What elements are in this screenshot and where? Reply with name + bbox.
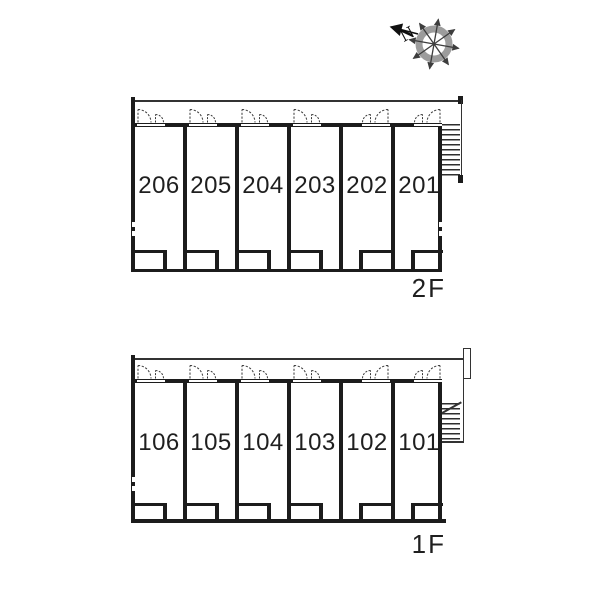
unit-divider-wall (391, 379, 395, 522)
unit-number: 104 (242, 431, 284, 455)
door-opening (189, 124, 217, 126)
door-swing-icon (414, 106, 441, 123)
balcony-step-line (291, 503, 321, 506)
floorplan-canvas: N 206205204203202201 2F 1061051041031021… (0, 0, 600, 600)
unit-number: 201 (398, 174, 440, 198)
balcony-step-line (413, 250, 443, 253)
unit-number: 101 (398, 431, 440, 455)
balcony-step-wall (359, 250, 363, 272)
unit-divider-wall (339, 379, 343, 522)
door-opening (137, 124, 165, 126)
balcony-step-wall (267, 503, 271, 522)
unit-divider-wall (287, 379, 291, 522)
door-swing-icon (189, 106, 216, 123)
door-opening (293, 124, 321, 126)
door-swing-icon (362, 362, 389, 379)
unit-number: 204 (242, 174, 284, 198)
balcony-step-line (187, 250, 217, 253)
door-opening (362, 380, 390, 382)
balcony-step-wall (319, 503, 323, 522)
unit-divider-wall (391, 123, 395, 272)
door-opening (414, 380, 442, 382)
door-swing-icon (137, 362, 164, 379)
balcony-step-line (187, 503, 217, 506)
door-swing-icon (293, 362, 320, 379)
balcony-step-wall (163, 503, 167, 522)
unit-number: 203 (294, 174, 336, 198)
balcony-step-line (239, 503, 269, 506)
unit-number: 205 (190, 174, 232, 198)
door-swing-icon (362, 106, 389, 123)
floor-label: 1F (368, 531, 446, 557)
balcony-step-wall (411, 503, 415, 522)
balcony-step-line (361, 250, 391, 253)
balcony-step-wall (267, 250, 271, 272)
door-swing-icon (414, 362, 441, 379)
door-opening (414, 124, 442, 126)
unit-number: 202 (346, 174, 388, 198)
floorplan-2f: 206205204203202201 2F (128, 96, 480, 314)
door-swing-icon (189, 362, 216, 379)
door-swing-icon (293, 106, 320, 123)
balcony-step-wall (163, 250, 167, 272)
balcony-step-line (135, 503, 165, 506)
unit-divider-wall (235, 379, 239, 522)
unit-divider-wall (339, 123, 343, 272)
balcony-step-line (361, 503, 391, 506)
balcony-step-wall (411, 250, 415, 272)
floor-label: 2F (368, 275, 446, 301)
balcony-step-wall (359, 503, 363, 522)
balcony-step-line (291, 250, 321, 253)
balcony-step-wall (215, 250, 219, 272)
unit-number: 105 (190, 431, 232, 455)
door-opening (241, 124, 269, 126)
north-label: N (396, 22, 417, 46)
balcony-step-line (413, 503, 443, 506)
door-swing-icon (241, 106, 268, 123)
floorplan-1f: 106105104103102101 1F (128, 348, 480, 566)
unit-number: 106 (138, 431, 180, 455)
compass-spokes (405, 15, 463, 73)
door-opening (189, 380, 217, 382)
balcony-step-wall (215, 503, 219, 522)
door-opening (293, 380, 321, 382)
door-opening (241, 380, 269, 382)
balcony-step-line (135, 250, 165, 253)
unit-number: 102 (346, 431, 388, 455)
door-swing-icon (241, 362, 268, 379)
door-swing-icon (137, 106, 164, 123)
balcony-step-line (239, 250, 269, 253)
door-opening (137, 380, 165, 382)
compass-rose: N (378, 6, 466, 82)
door-opening (362, 124, 390, 126)
unit-divider-wall (183, 379, 187, 522)
unit-number: 206 (138, 174, 180, 198)
balcony-step-wall (319, 250, 323, 272)
unit-number: 103 (294, 431, 336, 455)
